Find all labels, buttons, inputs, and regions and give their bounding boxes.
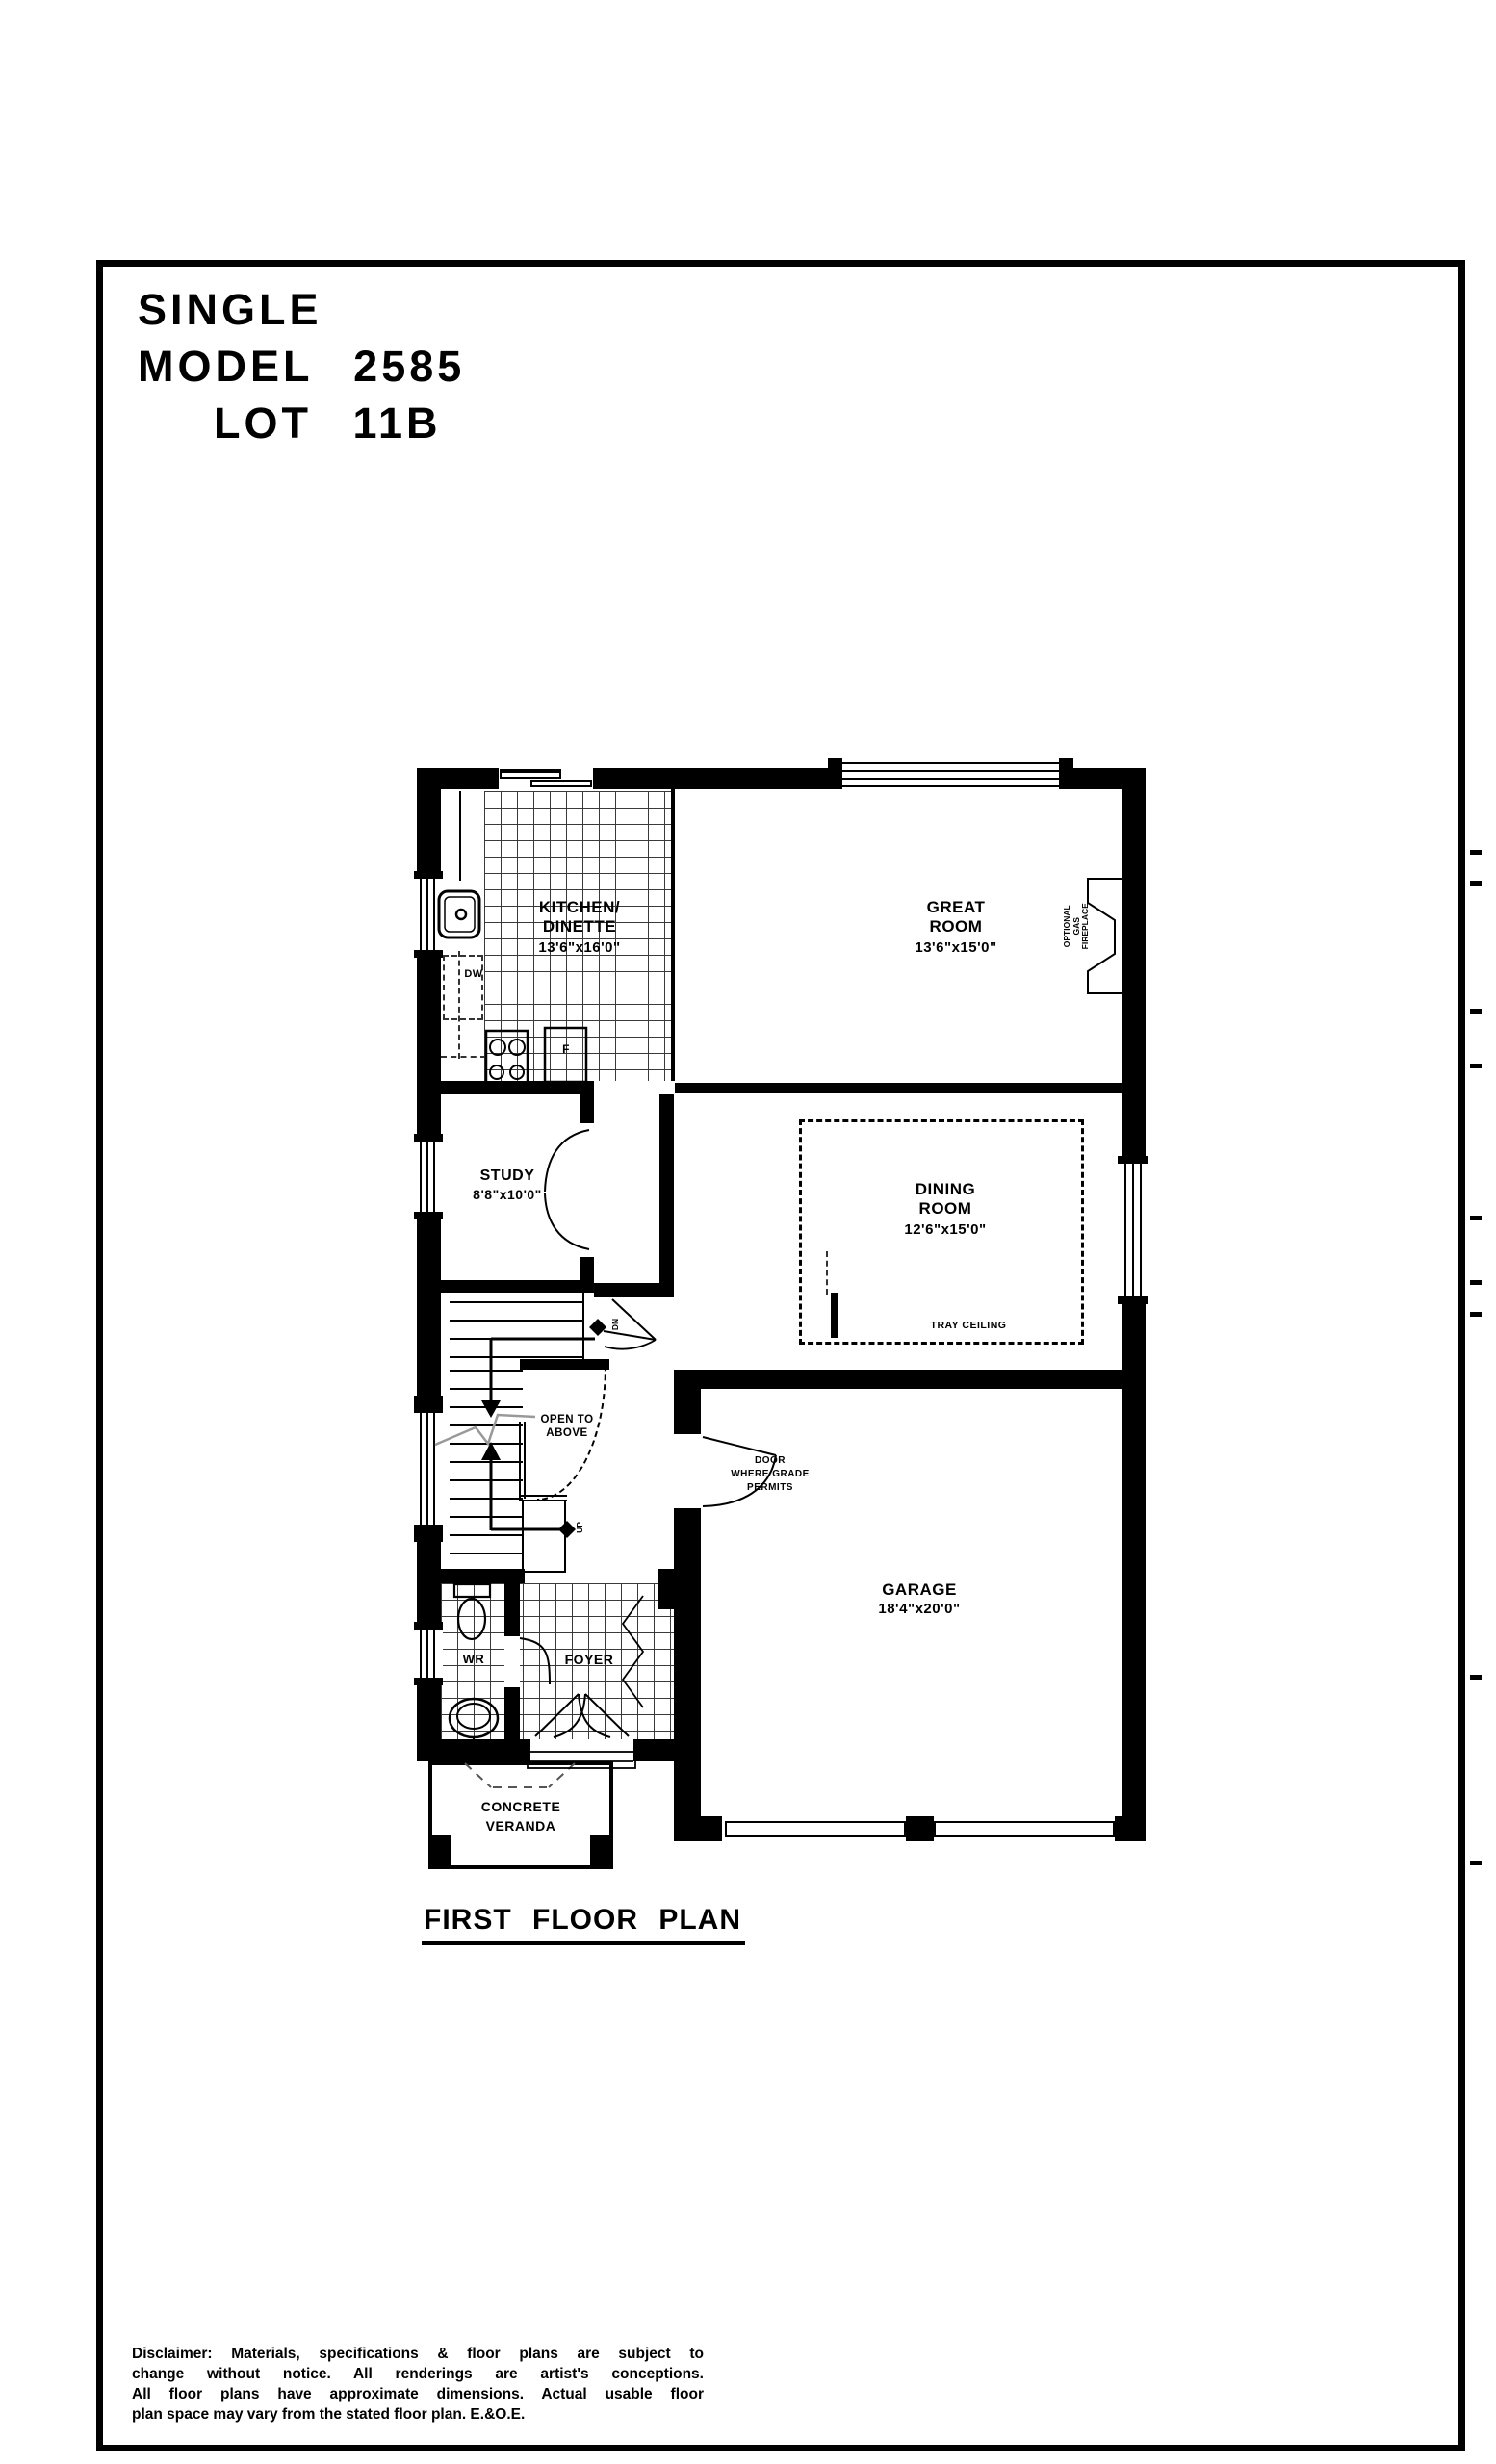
wr-sink-symbol — [450, 1699, 498, 1750]
greatroom-label2: ROOM — [930, 917, 983, 937]
kitchen-label: KITCHEN/ — [539, 898, 620, 917]
study-dims: 8'8"x10'0" — [473, 1187, 542, 1202]
stair-dn-label: DN — [610, 1319, 620, 1330]
fireplace-symbol — [1088, 879, 1122, 993]
plan-title: FIRST FLOOR PLAN — [422, 1904, 745, 1945]
disclaimer-line-4: plan space may vary from the stated floo… — [132, 2405, 704, 2425]
door-tag-diamond — [589, 1319, 606, 1336]
veranda-label2: VERANDA — [486, 1818, 556, 1834]
garage-dims: 18'4"x20'0" — [878, 1601, 960, 1617]
greatroom-label: GREAT — [927, 898, 986, 917]
grade-door-note1: DOOR — [755, 1455, 786, 1466]
disclaimer-line-2: change without notice. All renderings ar… — [132, 2365, 704, 2385]
foyer-label: FOYER — [565, 1652, 614, 1667]
grade-door-note3: PERMITS — [747, 1482, 793, 1493]
stair-up-label: UP — [575, 1522, 584, 1533]
front-double-doors — [535, 1694, 629, 1737]
veranda-label: CONCRETE — [481, 1799, 561, 1814]
closet-bifold-doors — [623, 1596, 643, 1707]
floor-plan-sheet: SINGLE MODEL 2585 LOT 11B — [0, 0, 1496, 2464]
kitchen-sink-symbol — [439, 891, 479, 937]
study-label: STUDY — [480, 1168, 535, 1185]
fireplace-note-3: FIREPLACE — [1081, 887, 1091, 964]
kitchen-dims: 13'6"x16'0" — [538, 939, 620, 956]
stair-tag-diamond — [558, 1521, 576, 1538]
greatroom-dims: 13'6"x15'0" — [915, 939, 996, 956]
dishwasher-label: DW — [464, 968, 482, 980]
toilet-symbol — [454, 1584, 490, 1639]
fireplace-note: OPTIONAL GAS FIREPLACE — [1063, 887, 1091, 964]
garage-label: GARAGE — [882, 1580, 957, 1600]
grade-door-note2: WHERE GRADE — [731, 1469, 810, 1479]
door-sill — [528, 1752, 635, 1768]
disclaimer-line-1: Disclaimer: Materials, specifications & … — [132, 2345, 704, 2365]
up-arrowhead — [481, 1442, 501, 1460]
dining-label2: ROOM — [919, 1199, 972, 1219]
open-above-label2: ABOVE — [546, 1427, 587, 1439]
plan-symbols — [0, 0, 1496, 2464]
stair-down-arrow — [491, 1339, 595, 1400]
stove-symbol — [486, 1031, 528, 1087]
wr-label: WR — [463, 1652, 485, 1666]
stair-break-line — [435, 1415, 535, 1445]
fridge-label: F — [562, 1042, 570, 1056]
dining-label: DINING — [916, 1180, 976, 1199]
wr-door-swing — [520, 1638, 550, 1684]
tray-ceiling-note: TRAY CEILING — [931, 1320, 1007, 1331]
disclaimer-line-3: All floor plans have approximate dimensi… — [132, 2385, 704, 2405]
dining-dims: 12'6"x15'0" — [904, 1221, 986, 1238]
kitchen-label2: DINETTE — [543, 917, 616, 937]
open-above-label: OPEN TO — [540, 1414, 593, 1425]
veranda-steps — [465, 1763, 575, 1787]
stair-up-arrow — [491, 1460, 563, 1530]
study-french-doors — [545, 1130, 589, 1249]
